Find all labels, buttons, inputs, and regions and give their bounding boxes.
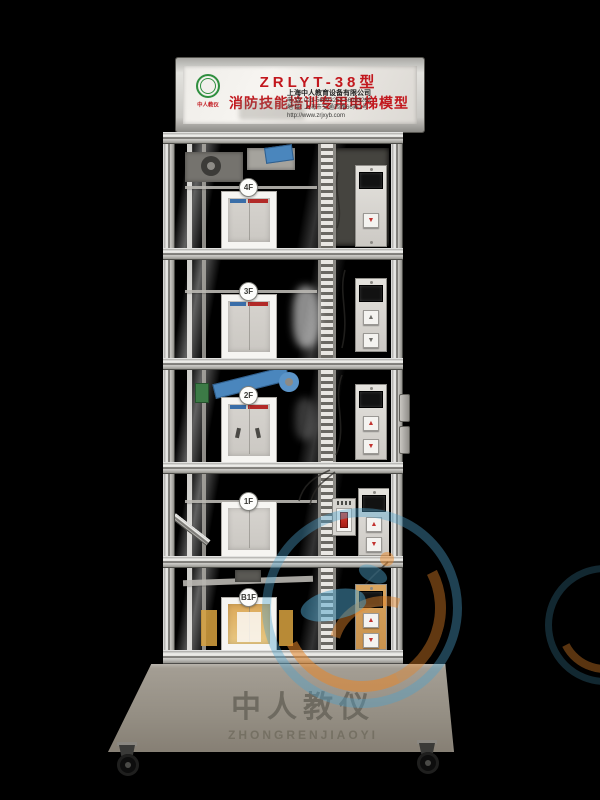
- hall-panel-2f: ▲ ▼: [355, 384, 387, 460]
- caster-wheel-right: [414, 740, 442, 780]
- door-seam: [249, 510, 250, 548]
- landing-door-3f: [222, 295, 276, 358]
- company-address: 地 址: 上海市交通西路66弄1号: [287, 105, 409, 113]
- guide-rail: [202, 260, 206, 358]
- door-indicator-strip-red: [248, 199, 268, 203]
- fireman-switch-plate: [336, 508, 352, 532]
- floor-section-b1f: B1F ▲ ▼: [175, 568, 389, 650]
- company-logo: 中人教仪: [189, 74, 227, 109]
- door-indicator-strip-blue: [230, 199, 246, 203]
- floor-display-3f: [359, 285, 383, 302]
- screw: [370, 281, 373, 284]
- car-wall-right: [279, 610, 293, 646]
- down-arrow-icon: ▼: [368, 217, 375, 224]
- floor-badge-1f: 1F: [239, 492, 258, 511]
- door-motor: [195, 383, 209, 403]
- floor-label: B1F: [241, 593, 256, 602]
- car-door-2f: [222, 398, 276, 462]
- header-sign-face: 中人教仪 ZRLYT-38型 消防技能培训专用电梯模型 上海中人教育设备有限公司…: [183, 66, 417, 124]
- reflection-highlight: [293, 286, 319, 348]
- fireman-switch-label: [337, 501, 351, 505]
- frame-rail-2: [163, 358, 403, 370]
- up-arrow-icon: ▲: [368, 617, 375, 624]
- floor-section-4f: 4F ▼: [175, 144, 389, 248]
- elevator-training-model-photo: 中人教仪 ZRLYT-38型 消防技能培训专用电梯模型 上海中人教育设备有限公司…: [0, 0, 600, 800]
- brand-chinese: 中人教仪: [152, 682, 454, 726]
- hall-call-up-button-b1f: ▲: [363, 613, 379, 628]
- down-arrow-icon: ▼: [368, 337, 375, 344]
- frame-rail-3: [163, 462, 403, 474]
- down-arrow-icon: ▼: [368, 443, 375, 450]
- floor-display-4f: [359, 172, 383, 189]
- brand-english: ZHONGRENJIAOYI: [152, 728, 454, 742]
- car-top-box: [235, 570, 261, 582]
- floor-badge-2f: 2F: [239, 386, 258, 405]
- floor-badge-b1f: B1F: [239, 588, 258, 607]
- car-interior-panel: [237, 612, 261, 642]
- floor-label: 3F: [244, 287, 253, 296]
- guide-rail: [187, 474, 192, 556]
- company-website: http://www.zrjxyb.com: [287, 113, 409, 121]
- door-operator-pulley: [279, 372, 299, 392]
- down-arrow-icon: ▼: [368, 637, 375, 644]
- hall-call-down-button-4f: ▼: [363, 213, 379, 228]
- hall-panel-4f: ▼: [355, 165, 387, 247]
- hall-panel-b1f: ▲ ▼: [355, 584, 387, 650]
- frame-rail-4: [163, 556, 403, 568]
- floor-badge-4f: 4F: [239, 178, 258, 197]
- fireman-switch-box: [332, 498, 356, 536]
- floor-label: 2F: [244, 391, 253, 400]
- pedestal-base: 中人教仪 ZHONGRENJIAOYI: [108, 664, 454, 752]
- landing-door-4f: [222, 192, 276, 248]
- floor-display-1f: [362, 495, 386, 512]
- hall-call-up-button-3f: ▲: [363, 310, 379, 325]
- floor-label: 4F: [244, 183, 253, 192]
- door-hinge: [399, 426, 410, 454]
- up-arrow-icon: ▲: [368, 420, 375, 427]
- floor-display-b1f: [359, 591, 383, 608]
- screw: [373, 491, 376, 494]
- frame-rail-1: [163, 248, 403, 260]
- door-indicator-strip-red: [248, 405, 268, 409]
- company-name: 上海中人教育设备有限公司: [287, 89, 409, 98]
- toothed-rack-rail: [318, 568, 336, 650]
- floor-section-3f: 3F ▲ ▼: [175, 260, 389, 358]
- watermark-orange-swoosh-icon: [545, 565, 600, 686]
- car-wall-left: [201, 610, 217, 646]
- frame-rail-top: [163, 132, 403, 144]
- reflection-highlight: [295, 398, 315, 440]
- frame-post-left: [163, 132, 175, 664]
- door-seam: [249, 303, 250, 350]
- guide-rail: [187, 370, 192, 462]
- header-sign: 中人教仪 ZRLYT-38型 消防技能培训专用电梯模型 上海中人教育设备有限公司…: [176, 58, 424, 132]
- door-seam: [249, 406, 250, 454]
- door-lock-vane: [255, 428, 261, 439]
- toothed-rack-rail: [318, 260, 336, 358]
- toothed-rack-rail: [318, 370, 336, 462]
- guide-rail: [187, 260, 192, 358]
- base-brand: 中人教仪 ZHONGRENJIAOYI: [108, 682, 454, 742]
- screw: [370, 587, 373, 590]
- door-indicator-strip-blue: [230, 405, 246, 409]
- hall-call-up-button-1f: ▲: [366, 517, 382, 532]
- door-lock-vane: [235, 428, 241, 439]
- hall-call-down-button-2f: ▼: [363, 439, 379, 454]
- door-hinge: [399, 394, 410, 422]
- frame-rail-bottom: [163, 650, 403, 664]
- door-indicator-strip-blue: [230, 302, 246, 306]
- door-indicator-strip-red: [248, 302, 268, 306]
- traction-pulley: [201, 156, 221, 176]
- up-arrow-icon: ▲: [371, 521, 378, 528]
- fireman-switch-rocker: [340, 512, 348, 528]
- company-info: 上海中人教育设备有限公司 电 话: 021-56093252 56093262 …: [287, 89, 409, 121]
- up-arrow-icon: ▲: [368, 314, 375, 321]
- screw: [370, 241, 373, 244]
- hall-call-up-button-2f: ▲: [363, 416, 379, 431]
- toothed-rack-rail: [318, 144, 336, 248]
- hall-panel-3f: ▲ ▼: [355, 278, 387, 352]
- floor-badge-3f: 3F: [239, 282, 258, 301]
- hall-call-down-button-b1f: ▼: [363, 633, 379, 648]
- caster-hub: [425, 760, 431, 766]
- down-arrow-icon: ▼: [371, 541, 378, 548]
- floor-label: 1F: [244, 497, 253, 506]
- company-logo-label: 中人教仪: [191, 100, 225, 108]
- screw: [370, 168, 373, 171]
- floor-section-2f: 2F ▲ ▼: [175, 370, 389, 462]
- hall-call-down-button-3f: ▼: [363, 333, 379, 348]
- hall-call-down-button-1f: ▼: [366, 537, 382, 552]
- door-seam: [249, 200, 250, 240]
- company-logo-icon: [196, 74, 220, 98]
- hall-panel-1f: ▲ ▼: [358, 488, 389, 556]
- floor-display-2f: [359, 391, 383, 408]
- caster-wheel-left: [114, 742, 142, 782]
- watermark-ring-icon: [545, 565, 600, 685]
- screw: [370, 387, 373, 390]
- caster-hub: [125, 762, 131, 768]
- floor-section-1f: 1F ▲ ▼: [175, 474, 389, 556]
- watermark-logo-partial: [545, 565, 600, 685]
